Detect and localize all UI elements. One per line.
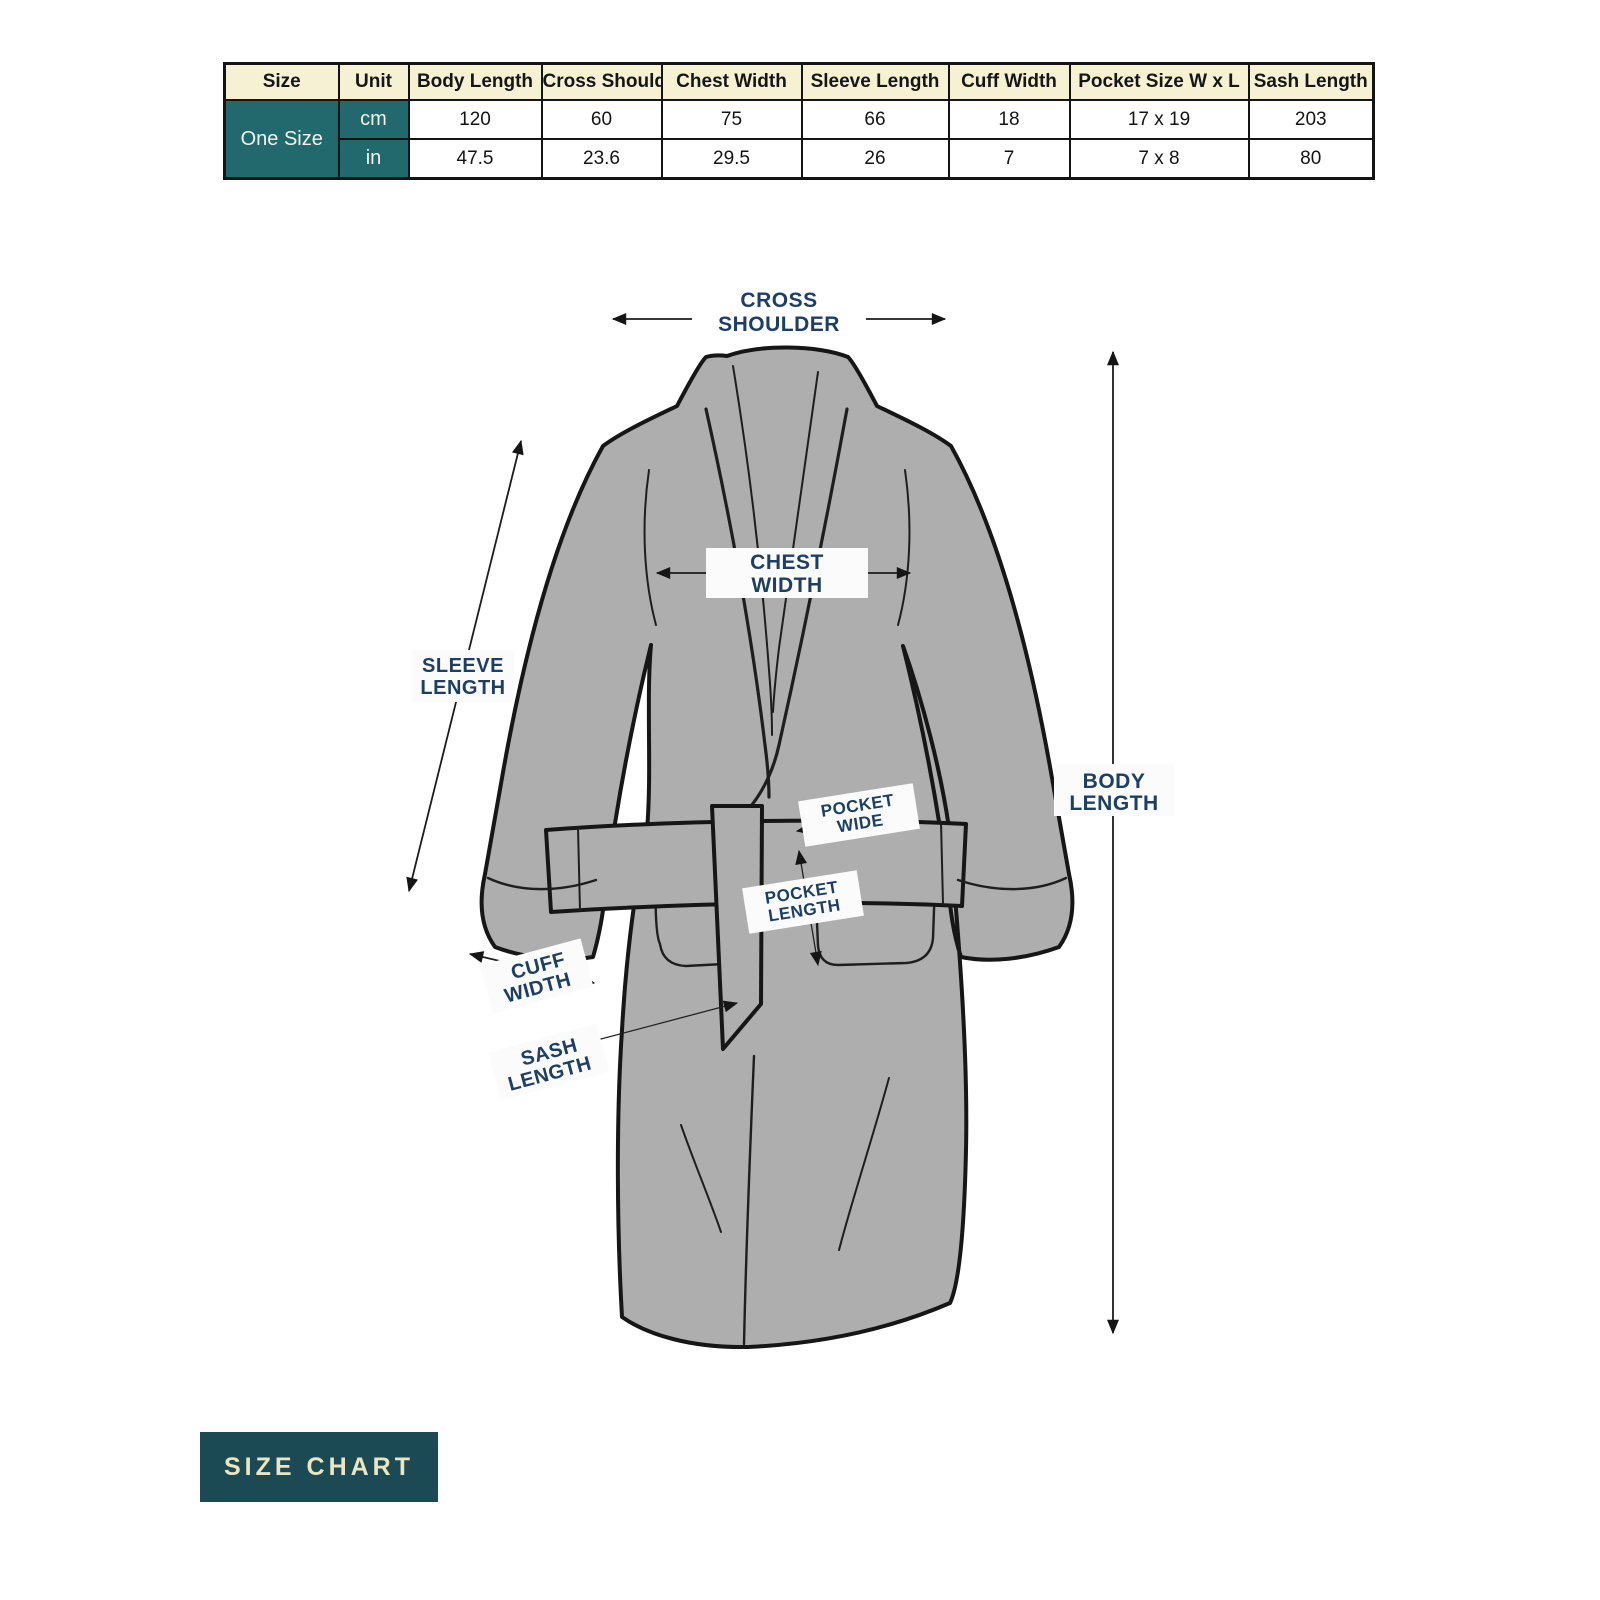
body-length-label-1: BODY	[1083, 770, 1146, 793]
cross-shoulder-label-2: SHOULDER	[718, 313, 840, 336]
sleeve-length-label-1: SLEEVE	[422, 655, 504, 677]
size-chart-page: { "table": { "headers": ["Size","Unit","…	[0, 0, 1600, 1600]
body-length-dimension: BODY LENGTH	[1054, 352, 1174, 1333]
robe-illustration	[482, 347, 1073, 1347]
cross-shoulder-label-1: CROSS	[740, 289, 817, 312]
size-chart-badge: SIZE CHART	[200, 1432, 438, 1502]
body-length-label-2: LENGTH	[1069, 792, 1158, 815]
sleeve-length-label-2: LENGTH	[420, 677, 505, 699]
cross-shoulder-dimension: CROSS SHOULDER	[613, 289, 945, 336]
chest-width-label-1: CHEST	[750, 551, 824, 574]
chest-width-label-2: WIDTH	[751, 574, 822, 597]
robe-measurement-diagram: CROSS SHOULDER CHEST WIDTH SLEEVE LENGTH…	[0, 0, 1600, 1600]
